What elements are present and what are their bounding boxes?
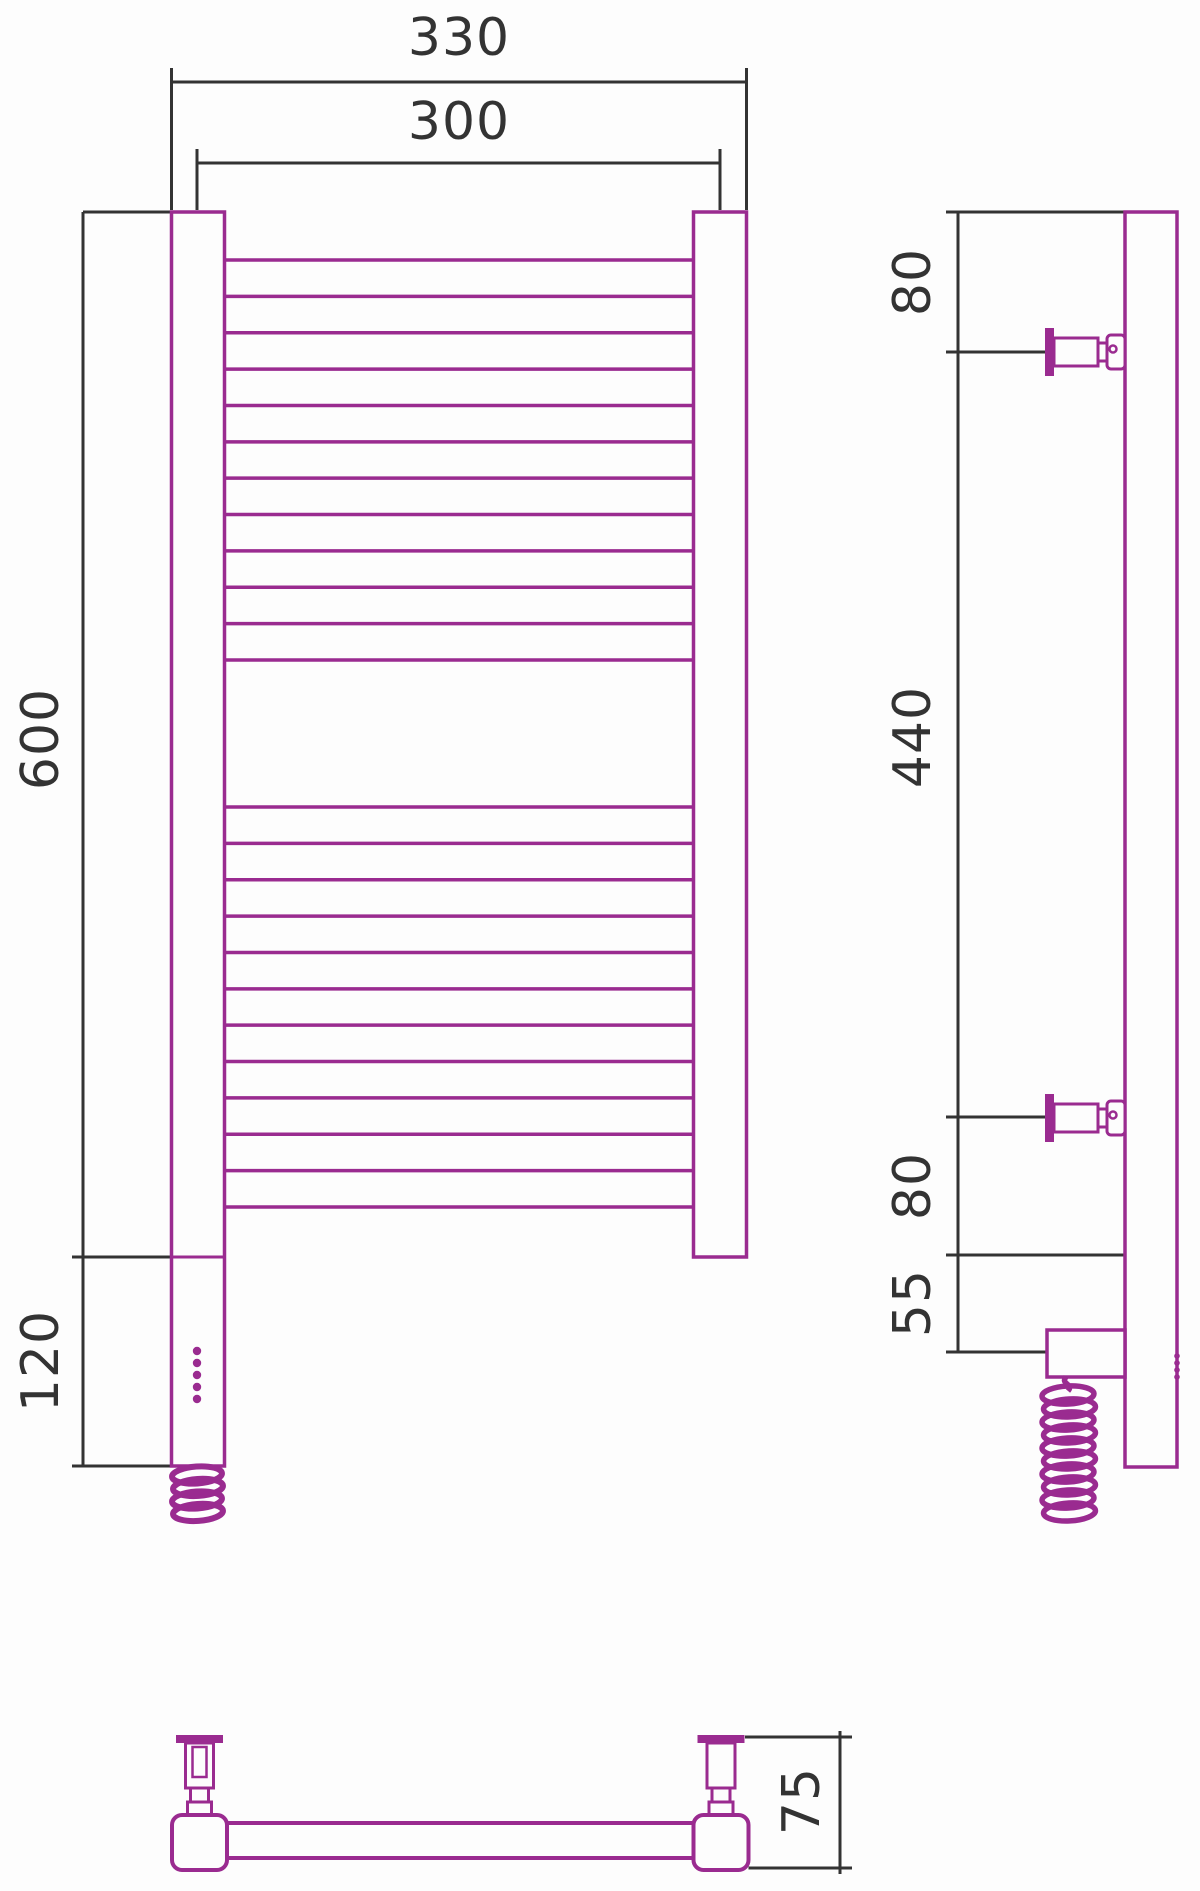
post-cross-section bbox=[694, 1815, 749, 1870]
drawing-geometry bbox=[0, 0, 1200, 1891]
led-dot bbox=[1174, 1353, 1180, 1359]
bracket-arm bbox=[1054, 1104, 1098, 1132]
coiled-cable-icon bbox=[171, 1465, 223, 1523]
dim-label-heater-offset: 55 bbox=[887, 1269, 939, 1337]
bracket-arm bbox=[707, 1743, 735, 1788]
dim-label-top-offset: 80 bbox=[887, 248, 939, 316]
led-dot bbox=[1174, 1360, 1180, 1366]
left-post bbox=[172, 212, 225, 1466]
side-view bbox=[1042, 212, 1180, 1522]
bottom-left-post-section bbox=[172, 1735, 227, 1870]
led-dot bbox=[1174, 1367, 1180, 1373]
bracket-arm-inner bbox=[193, 1747, 207, 1777]
dimension-lines-side bbox=[946, 212, 1125, 1352]
led-dot bbox=[193, 1371, 201, 1379]
led-dot bbox=[193, 1359, 201, 1367]
bracket-arm bbox=[1054, 338, 1098, 366]
dim-label-height: 600 bbox=[15, 688, 67, 790]
drawing-canvas: 330 300 600 120 80 440 80 55 75 bbox=[0, 0, 1200, 1891]
dim-label-bottom-offset: 80 bbox=[887, 1152, 939, 1220]
rung-group bbox=[225, 260, 694, 1207]
coil-loop bbox=[172, 1502, 223, 1522]
led-dot bbox=[193, 1347, 201, 1355]
right-post bbox=[694, 212, 747, 1257]
led-dot bbox=[193, 1383, 201, 1391]
bracket-screw-icon bbox=[1110, 346, 1117, 353]
bottom-view bbox=[172, 1735, 749, 1870]
dimension-lines-front-left bbox=[72, 212, 171, 1466]
coil-loop bbox=[1043, 1502, 1096, 1523]
led-dot bbox=[1174, 1374, 1180, 1380]
bottom-right-post-section bbox=[694, 1735, 749, 1870]
coiled-cable-side-icon bbox=[1042, 1377, 1096, 1522]
wall-bracket-bottom bbox=[1045, 1094, 1125, 1142]
heating-element-housing bbox=[1047, 1330, 1125, 1377]
dim-label-heater-section: 120 bbox=[15, 1310, 67, 1412]
dim-label-outer-width: 330 bbox=[408, 12, 510, 64]
bracket-screw-icon bbox=[1110, 1112, 1117, 1119]
dim-label-bracket-span: 440 bbox=[887, 686, 939, 788]
wall-bracket-top bbox=[1045, 328, 1125, 376]
dim-label-inner-width: 300 bbox=[408, 96, 510, 148]
post-cross-section bbox=[172, 1815, 227, 1870]
dim-label-depth: 75 bbox=[776, 1767, 828, 1835]
side-post-tube bbox=[1125, 212, 1177, 1467]
led-dot bbox=[193, 1395, 201, 1403]
front-view bbox=[171, 212, 746, 1523]
